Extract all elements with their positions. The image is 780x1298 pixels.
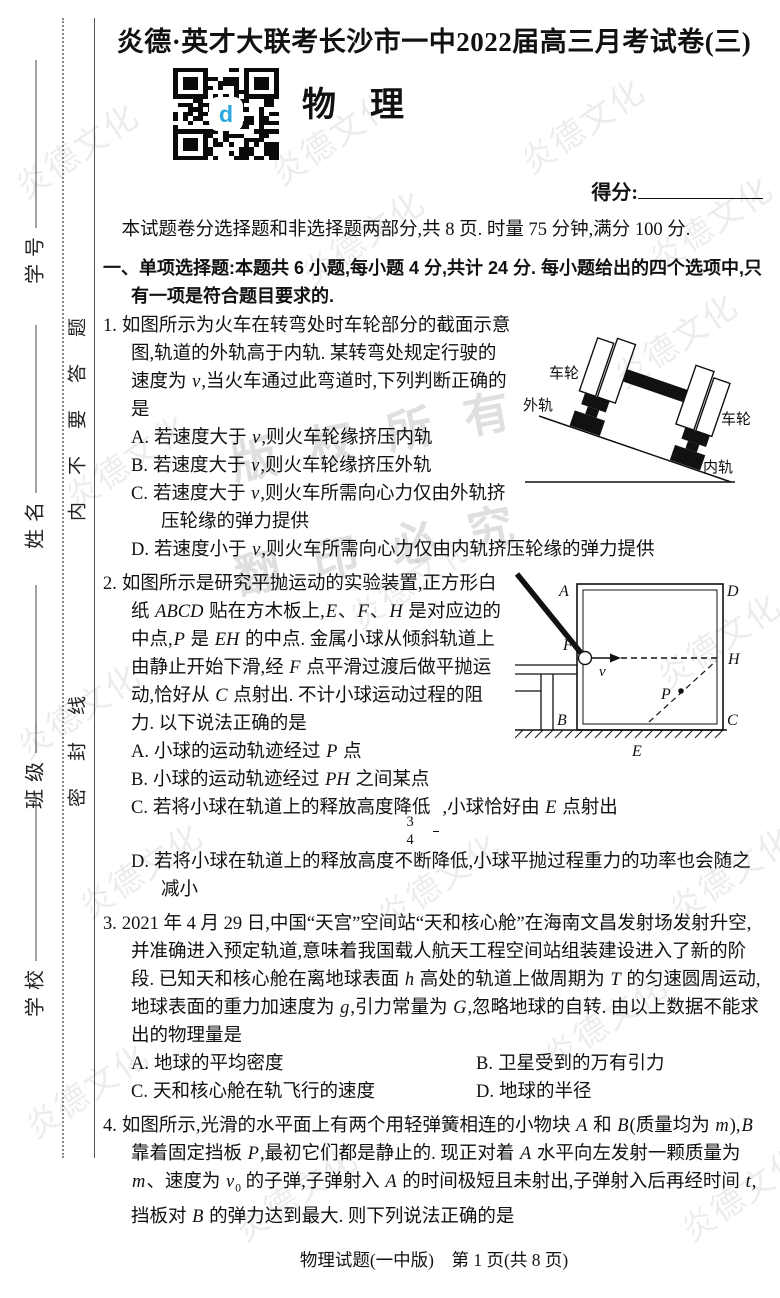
header-row: d 物 理 xyxy=(103,60,765,176)
question-3-option-d: D.地球的半径 xyxy=(476,1078,765,1106)
field-school: 学校 xyxy=(19,793,48,1017)
seal-dotted-line xyxy=(62,18,64,1158)
field-name: 姓名 xyxy=(19,325,48,549)
field-school-label: 学校 xyxy=(25,963,47,1017)
seal-text-lower: 密封线 xyxy=(63,669,90,807)
score-label: 得分: xyxy=(591,182,638,204)
question-2: A D B C H E F P v 2.如图所示是研究平抛运动的实验装置,正方形… xyxy=(103,570,765,904)
score-row: 得分: xyxy=(103,178,763,208)
seal-text-upper: 内不要答题 xyxy=(63,291,90,521)
label-point-e: E xyxy=(631,743,642,760)
label-corner-d: D xyxy=(726,583,739,600)
page-title: 炎德·英才大联考长沙市一中2022届高三月考试卷(三) xyxy=(103,24,765,60)
label-outer-rail: 外轨 xyxy=(523,397,553,414)
exam-page: 炎德文化炎德文化炎德文化炎德文化炎德文化炎德文化炎德文化炎德文化炎德文化炎德文化… xyxy=(0,0,780,1298)
label-point-h: H xyxy=(727,651,741,668)
field-student-id-line xyxy=(34,60,37,228)
label-velocity-v: v xyxy=(599,664,606,680)
margin-solid-line xyxy=(94,18,95,1158)
metal-ball xyxy=(579,652,592,665)
board-outer-square xyxy=(577,584,723,730)
question-1-number: 1. xyxy=(103,316,117,336)
question-3-option-b: B.卫星受到的万有引力 xyxy=(476,1050,765,1078)
label-point-p: P xyxy=(660,686,671,703)
point-p-dot xyxy=(678,688,684,694)
question-2-number: 2. xyxy=(103,574,117,594)
subject-title: 物 理 xyxy=(103,92,603,120)
question-3-options: A.地球的平均密度 B.卫星受到的万有引力 C.天和核心舱在轨飞行的速度 D.地… xyxy=(131,1050,765,1106)
label-wheel-top: 车轮 xyxy=(549,365,579,382)
question-3: 3.2021 年 4 月 29 日,中国“天宫”空间站“天和核心舱”在海南文昌发… xyxy=(103,910,765,1106)
label-inner-rail: 内轨 xyxy=(703,459,733,476)
label-wheel-right: 车轮 xyxy=(721,411,751,428)
question-2-option-c: C.若将小球在轨道上的释放高度降低34,小球恰好由 E 点射出 xyxy=(131,794,765,848)
question-4: 4.如图所示,光滑的水平面上有两个用轻弹簧相连的小物块 A 和 B(质量均为 m… xyxy=(103,1112,765,1231)
question-3-option-a: A.地球的平均密度 xyxy=(131,1050,476,1078)
label-corner-b: B xyxy=(557,712,567,729)
ground-hatching xyxy=(515,730,723,738)
question-3-stem: 3.2021 年 4 月 29 日,中国“天宫”空间站“天和核心舱”在海南文昌发… xyxy=(131,910,765,1050)
field-student-id-label: 学号 xyxy=(25,230,47,284)
margin-sidebar: 学号 姓名 班级 学校 内不要答题 密封线 xyxy=(0,0,103,1298)
question-4-stem: 4.如图所示,光滑的水平面上有两个用轻弹簧相连的小物块 A 和 B(质量均为 m… xyxy=(131,1112,765,1231)
velocity-arrowhead xyxy=(610,654,621,663)
intro-text: 本试题卷分选择题和非选择题两部分,共 8 页. 时量 75 分钟,满分 100 … xyxy=(103,216,765,244)
question-3-option-c: C.天和核心舱在轨飞行的速度 xyxy=(131,1078,476,1106)
footer-text: 物理试题(一中版) 第 1 页(共 8 页) xyxy=(103,1246,765,1274)
field-class-line xyxy=(34,585,37,753)
label-corner-c: C xyxy=(727,712,738,729)
field-name-label: 姓名 xyxy=(25,495,47,549)
paper-inner-square xyxy=(583,590,717,724)
question-1-option-c: C.若速度大于 v,则火车所需向心力仅由外轨挤压轮缘的弹力提供 xyxy=(131,480,765,536)
label-corner-a: A xyxy=(558,583,569,600)
figure-train-wheels: 车轮 外轨 车轮 内轨 xyxy=(523,314,765,486)
label-point-f: F xyxy=(562,637,573,654)
question-3-number: 3. xyxy=(103,914,117,934)
field-class: 班级 xyxy=(19,585,48,809)
question-1: 车轮 外轨 车轮 内轨 1.如图所示为火车在转弯处时车轮部分的截面示意图,轨道的… xyxy=(103,312,765,564)
question-1-option-d: D.若速度小于 v,则火车所需向心力仅由内轨挤压轮缘的弹力提供 xyxy=(131,536,765,564)
field-school-line xyxy=(34,793,37,961)
question-4-number: 4. xyxy=(103,1116,117,1136)
section-1-heading: 一、单项选择题:本题共 6 小题,每小题 4 分,共计 24 分. 每小题给出的… xyxy=(103,254,765,310)
figure-projectile-apparatus: A D B C H E F P v xyxy=(515,572,765,784)
exam-content: 炎德·英才大联考长沙市一中2022届高三月考试卷(三) d 物 理 得分: 本试… xyxy=(103,18,765,1280)
question-2-option-d: D.若将小球在轨道上的释放高度不断降低,小球平抛过程重力的功率也会随之减小 xyxy=(131,848,765,904)
field-name-line xyxy=(34,325,37,493)
score-blank-line xyxy=(638,179,763,199)
field-student-id: 学号 xyxy=(19,60,48,284)
